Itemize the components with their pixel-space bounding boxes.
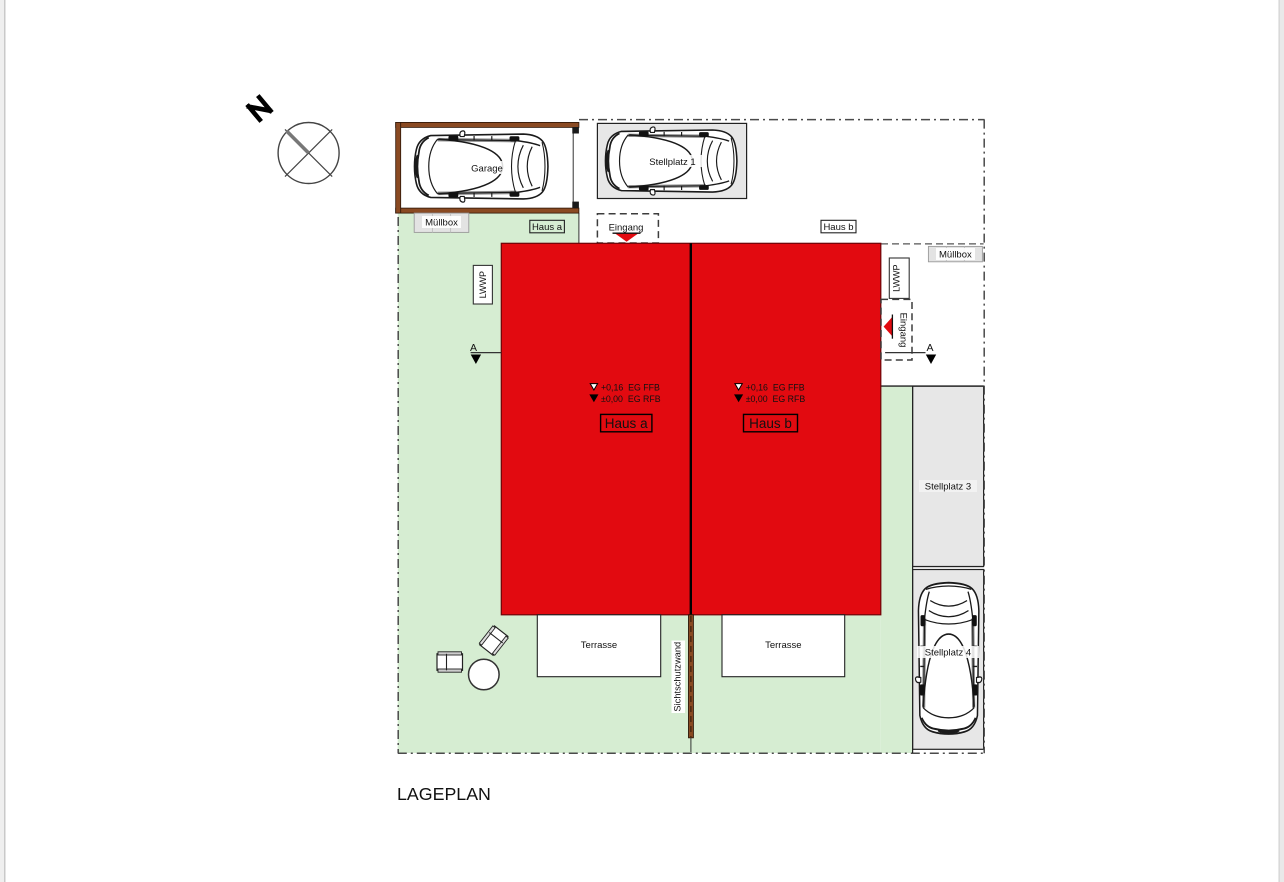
svg-text:Terrasse: Terrasse [581, 640, 617, 651]
svg-text:Stellplatz 3: Stellplatz 3 [925, 482, 971, 493]
svg-text:Garage: Garage [471, 164, 503, 175]
svg-text:Müllbox: Müllbox [425, 218, 458, 229]
svg-text:LWWP: LWWP [891, 265, 901, 292]
svg-text:Stellplatz 4: Stellplatz 4 [925, 648, 971, 659]
svg-text:±0,00 EG RFB: ±0,00 EG RFB [746, 394, 806, 404]
svg-text:LWWP: LWWP [478, 271, 488, 298]
svg-text:Terrasse: Terrasse [765, 640, 801, 651]
svg-text:+0,16 EG FFB: +0,16 EG FFB [601, 383, 660, 393]
svg-text:±0,00 EG RFB: ±0,00 EG RFB [601, 394, 661, 404]
svg-text:+0,16 EG FFB: +0,16 EG FFB [746, 383, 805, 393]
svg-text:Haus b: Haus b [749, 416, 792, 431]
svg-text:Müllbox: Müllbox [939, 250, 972, 261]
svg-text:A: A [927, 342, 934, 354]
svg-text:LAGEPLAN: LAGEPLAN [397, 784, 491, 804]
svg-text:Sichtschutzwand: Sichtschutzwand [673, 642, 683, 712]
svg-text:Haus b: Haus b [823, 222, 853, 233]
svg-text:Stellplatz 1: Stellplatz 1 [649, 157, 695, 168]
svg-text:Haus a: Haus a [605, 416, 648, 431]
svg-text:Eingang: Eingang [609, 223, 644, 234]
svg-text:Eingang: Eingang [898, 313, 909, 348]
svg-text:Haus a: Haus a [532, 222, 563, 233]
